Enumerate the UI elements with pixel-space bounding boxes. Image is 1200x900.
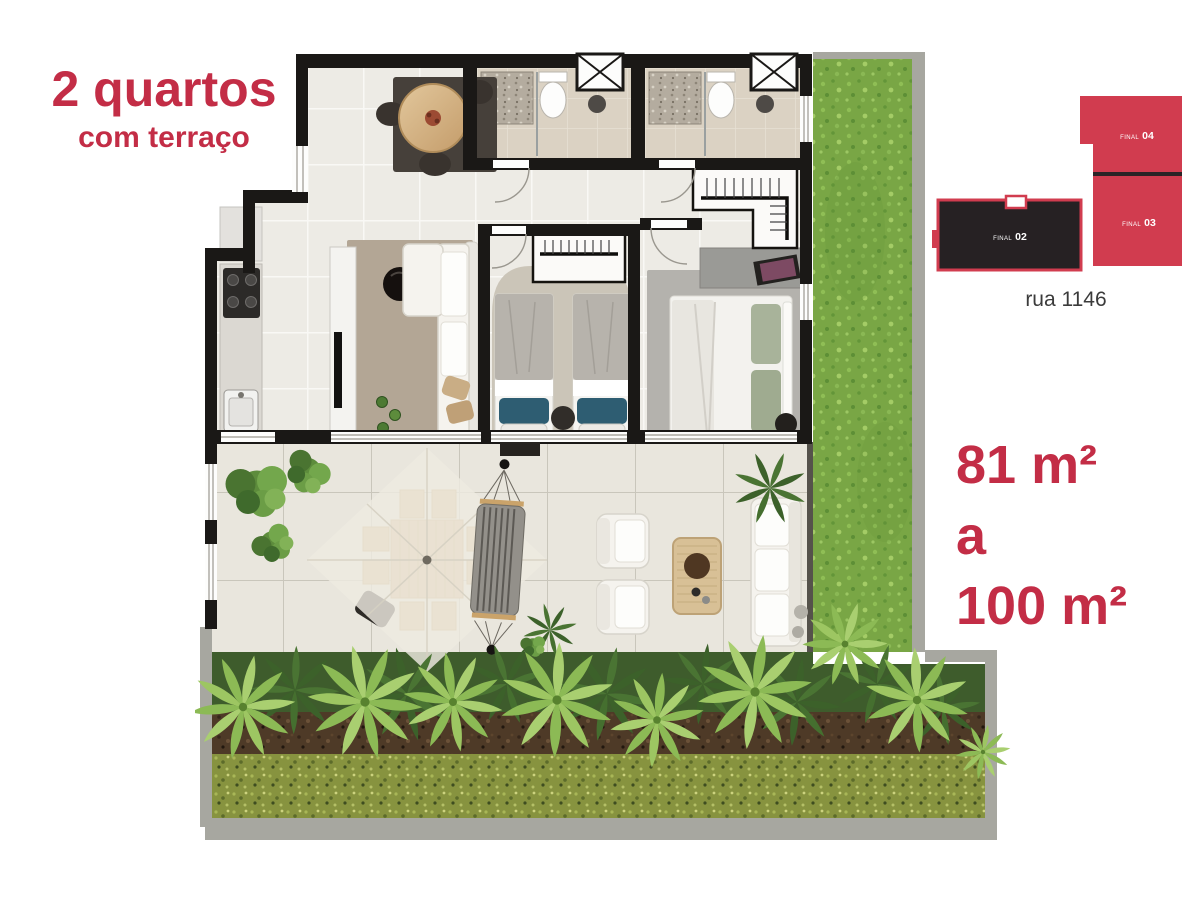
teal-pillow [577, 398, 627, 424]
twin-slider [491, 432, 627, 442]
kitchen-sink [224, 390, 258, 432]
window-left [205, 464, 217, 520]
toilet [540, 82, 566, 118]
shower-head [588, 95, 606, 113]
toilet [708, 82, 734, 118]
pouf [551, 406, 575, 430]
window-corner [292, 146, 308, 192]
toilet-tank [539, 72, 567, 82]
window-right [800, 284, 812, 320]
paver-stone [792, 626, 804, 638]
brochure-page: 2 quartos com terraço 81 m² a 100 m² FIN… [0, 0, 1200, 900]
armchair-1 [597, 514, 649, 568]
street-label: rua 1146 [1025, 288, 1106, 311]
bath1-door [493, 160, 529, 168]
lawn-shading [825, 162, 885, 302]
lawn-shading [857, 422, 913, 542]
stove [223, 268, 260, 318]
terrace-edge [807, 442, 813, 654]
lawn-strip [813, 59, 912, 652]
master-slider [645, 432, 797, 442]
centerpiece [425, 110, 441, 126]
toilet-tank [707, 72, 735, 82]
master-door [651, 220, 687, 228]
shower-head [756, 95, 774, 113]
outdoor-coffee-table [673, 538, 721, 614]
vent-shaft-2 [751, 54, 797, 90]
green-pillow [751, 304, 781, 364]
vent-shaft-1 [577, 54, 623, 90]
living-area [330, 240, 478, 440]
armchair-2 [597, 580, 649, 634]
twin-bed-2 [573, 294, 631, 440]
paver-stone [794, 605, 808, 619]
parasol-pole [423, 556, 432, 565]
window-left [205, 544, 217, 600]
twin-door [492, 226, 526, 234]
bath2-door [659, 160, 695, 168]
window-right [800, 96, 812, 142]
kitchen [220, 207, 262, 440]
floor-plan [195, 52, 1025, 847]
double-bed [670, 296, 792, 442]
living-slider [331, 432, 481, 442]
tv-icon [334, 332, 342, 408]
twin-bed-1 [495, 294, 553, 440]
teal-pillow [499, 398, 549, 424]
keyplan-seam [1093, 172, 1182, 176]
doormat [500, 442, 540, 456]
dining-chair [419, 152, 451, 176]
tv-sideboard [330, 247, 356, 437]
tray [684, 553, 710, 579]
outdoor-sofa [751, 498, 801, 646]
shower-area [649, 72, 701, 124]
keyplan-unit-03 [1093, 176, 1182, 266]
